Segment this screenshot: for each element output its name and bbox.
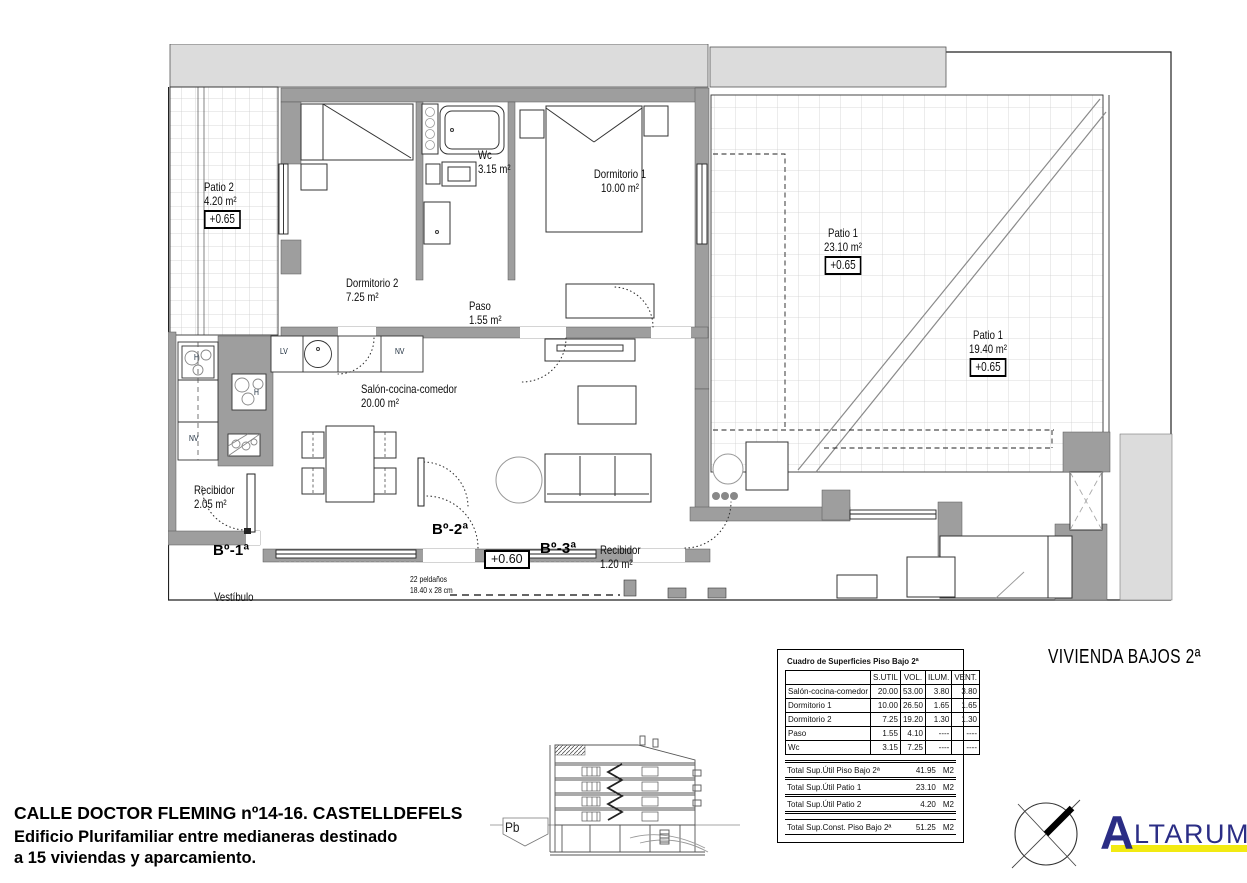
label-vestibulo: Vestíbulo [214,590,254,604]
room-name: Patio 1 [951,328,1025,342]
total-value: 4.20 [920,800,936,809]
room-name: Patio 1 [806,226,880,240]
level-badge: +0.65 [970,358,1007,377]
floor-plan: Patio 2 4.20 m² +0.65 Wc 3.15 m² Dormito… [168,44,1176,606]
total-label: Total Sup.Útil Piso Bajo 2ª [787,766,880,775]
label-fridge-1: NV [395,347,404,356]
col-sutil: S.UTIL [871,671,901,685]
label-door-b3: Bº-3ª [540,540,576,557]
building-section-drawing [490,730,740,882]
total-label: Total Sup.Útil Patio 2 [787,800,861,809]
bed2 [301,104,413,190]
label-recibidor1: Recibidor 2.05 m² [194,483,235,511]
label-dormitorio1: Dormitorio 1 10.00 m² [572,167,668,195]
address-line1: CALLE DOCTOR FLEMING nº14-16. CASTELLDEF… [14,803,462,824]
logo-name: LTARUM [1134,819,1247,849]
label-dishwasher: LV [280,347,288,356]
address-line2: Edificio Plurifamiliar entre medianeras … [14,827,462,848]
sheet-title: VIVIENDA BAJOS 2ª [1048,646,1201,669]
room-area: 2.05 m² [194,497,235,511]
room-name: Salón-cocina-comedor [361,382,457,396]
logo-initial: A [1100,806,1134,859]
patio1-tiles [711,95,1103,472]
label-recibidor2: Recibidor 1.20 m² [600,543,641,571]
company-logo: ALTARUM S.L. [1100,809,1247,867]
total-unit: M2 [943,800,954,809]
total-row: Total Sup.Útil Patio 1 23.10M2 [785,780,956,797]
total-row: Total Sup.Útil Patio 2 4.20M2 [785,797,956,814]
label-stairs-note: 22 peldaños 18.40 x 28 cm [410,574,453,595]
label-dormitorio2: Dormitorio 2 7.25 m² [346,276,398,304]
room-area: 1.55 m² [469,313,502,327]
label-patio1a: Patio 1 23.10 m² +0.65 [806,226,880,275]
total-row: Total Sup.Útil Piso Bajo 2ª 41.95M2 [785,763,956,780]
label-patio2: Patio 2 4.20 m² +0.65 [204,180,241,229]
table-header-row: S.UTIL VOL. ILUM. VENT. [786,671,980,685]
grand-total-value: 51.25 [916,823,936,832]
total-unit: M2 [943,783,954,792]
room-name: Vestíbulo [214,590,254,604]
table-row: Wc 3.15 7.25 ---- ---- [786,741,980,755]
room-area: 20.00 m² [361,396,457,410]
drawing-sheet: Patio 2 4.20 m² +0.65 Wc 3.15 m² Dormito… [0,0,1247,883]
total-value: 41.95 [916,766,936,775]
col-room [786,671,871,685]
level-badge: +0.65 [825,256,862,275]
label-door-b2: Bº-2ª [432,521,468,538]
section-stairs [608,764,622,820]
surface-table: Cuadro de Superficies Piso Bajo 2ª S.UTI… [777,649,964,843]
room-name: Dormitorio 2 [346,276,398,290]
table-totals: Total Sup.Útil Piso Bajo 2ª 41.95M2 Tota… [785,760,956,814]
col-vol: VOL. [900,671,925,685]
room-area: 10.00 m² [572,181,668,195]
label-entry-level: +0.60 [484,548,530,569]
label-hob-2: H [254,388,259,397]
project-address: CALLE DOCTOR FLEMING nº14-16. CASTELLDEF… [14,803,462,868]
col-ilum: ILUM. [925,671,951,685]
grand-total-label: Total Sup.Const. Piso Bajo 2ª [787,823,891,832]
label-patio1b: Patio 1 19.40 m² +0.65 [951,328,1025,377]
label-hob-1: H [194,353,199,362]
label-salon: Salón-cocina-comedor 20.00 m² [361,382,457,410]
bed1 [520,106,668,318]
table-row: Dormitorio 1 10.00 26.50 1.65 1.65 [786,699,980,713]
room-name: Recibidor [600,543,641,557]
floor-plan-drawing [168,44,1176,606]
room-area: 19.40 m² [951,342,1025,356]
room-area: 1.20 m² [600,557,641,571]
level-badge: +0.60 [484,550,530,569]
stairs-count: 22 peldaños [410,574,453,585]
room-area: 3.15 m² [478,162,511,176]
table-row: Salón-cocina-comedor 20.00 53.00 3.80 3.… [786,685,980,699]
roof-hatch [555,745,585,755]
room-name: Wc [478,148,511,162]
address-line3: a 15 viviendas y aparcamiento. [14,848,462,869]
logo-text: ALTARUM S.L. [1100,809,1247,856]
col-vent: VENT. [952,671,980,685]
total-unit: M2 [943,766,954,775]
room-area: 23.10 m² [806,240,880,254]
table-row: Dormitorio 2 7.25 19.20 1.30 1.30 [786,713,980,727]
label-door-b1: Bº-1ª [213,542,249,559]
total-label: Total Sup.Útil Patio 1 [787,783,861,792]
grand-total-row: Total Sup.Const. Piso Bajo 2ª 51.25M2 [785,819,956,835]
room-area: 4.20 m² [204,194,241,208]
level-badge: +0.65 [204,210,241,229]
section-level-label: Pb [505,819,520,835]
surface-grid: S.UTIL VOL. ILUM. VENT. Salón-cocina-com… [785,670,980,755]
round-table [496,457,542,503]
door-arcs [202,287,731,548]
room-name: Patio 2 [204,180,241,194]
hob-dots [712,492,738,500]
surface-table-title: Cuadro de Superficies Piso Bajo 2ª [787,656,942,666]
room-area: 7.25 m² [346,290,398,304]
label-paso: Paso 1.55 m² [469,299,502,327]
total-value: 23.10 [916,783,936,792]
room-name: Recibidor [194,483,235,497]
stairs-size: 18.40 x 28 cm [410,585,453,596]
north-compass-icon [1010,798,1082,870]
label-fridge-2: NV [189,434,198,443]
table-row: Paso 1.55 4.10 ---- ---- [786,727,980,741]
window-sill-hatch [276,559,416,564]
grand-total-unit: M2 [943,823,954,832]
room-name: Dormitorio 1 [572,167,668,181]
label-wc: Wc 3.15 m² [478,148,511,176]
room-name: Paso [469,299,502,313]
